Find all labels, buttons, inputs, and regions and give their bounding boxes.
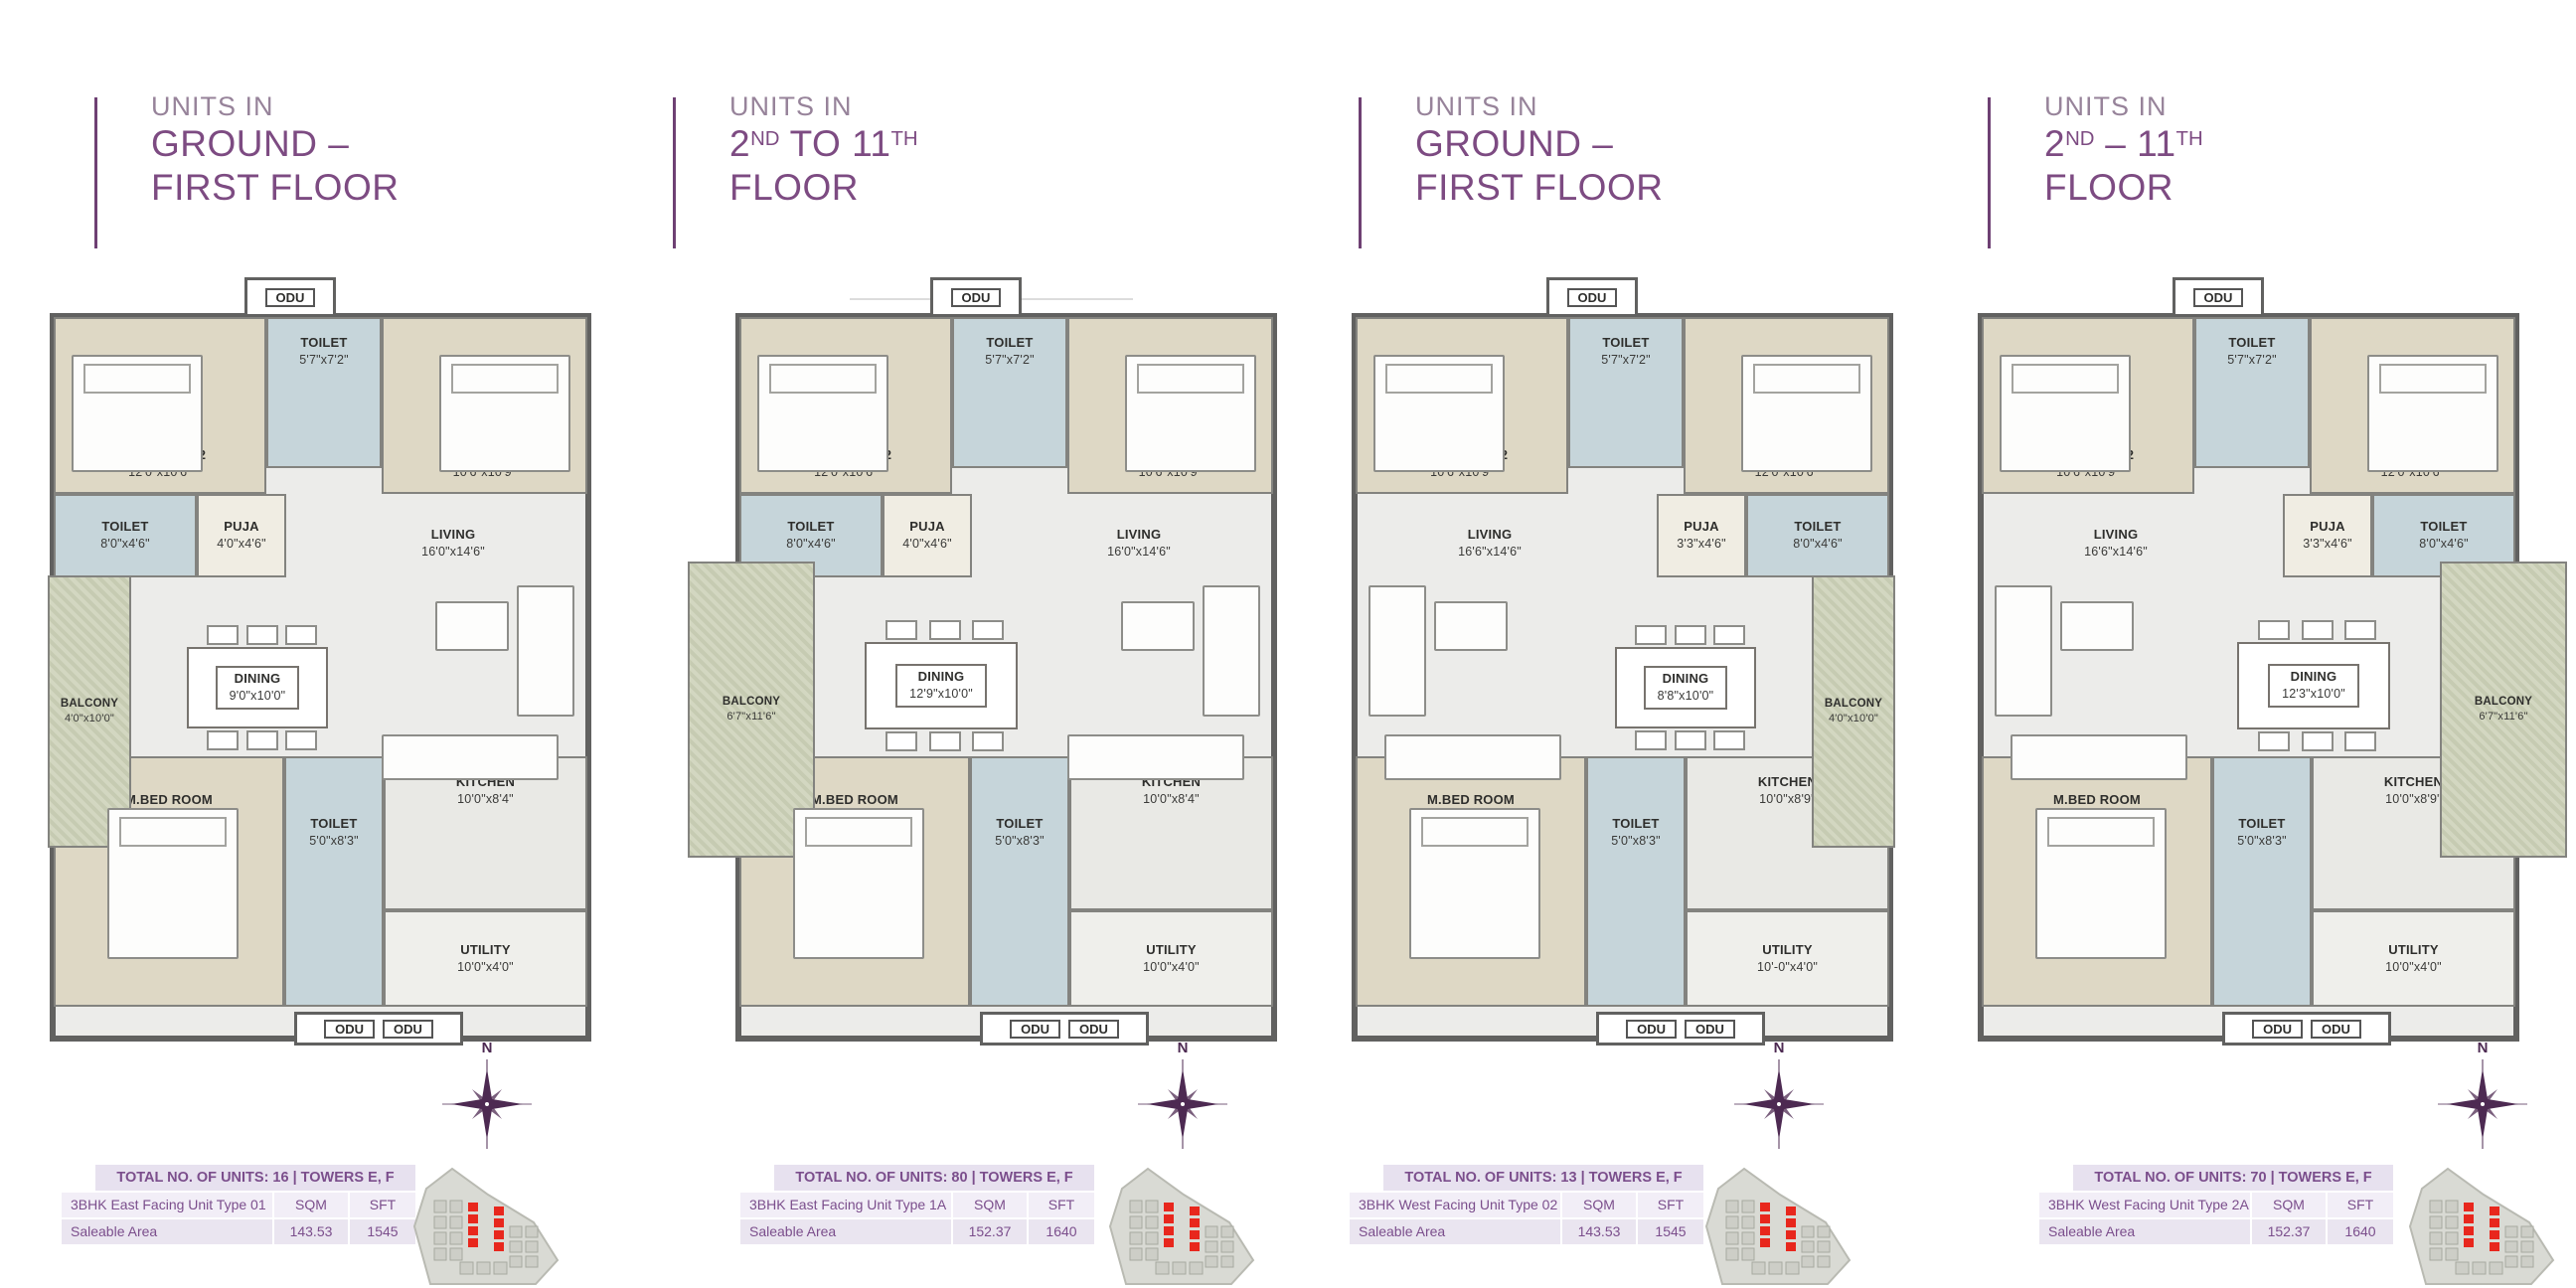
- title-text-part: 2: [729, 123, 750, 164]
- room-label: PUJA4'0"x4'6": [217, 519, 266, 552]
- panel-title-text: UNITS INGROUND –FIRST FLOOR: [151, 91, 399, 248]
- dining-table: DINING8'8"x10'0": [1615, 647, 1755, 729]
- room-dimensions: 16'6"x14'6": [2084, 544, 2148, 560]
- room-label: LIVING16'0"x14'6": [1107, 527, 1171, 560]
- bed-icon: [439, 355, 570, 472]
- odu-label: ODU: [2193, 288, 2244, 307]
- table-cell: 152.37: [953, 1219, 1027, 1244]
- table-cell: 3BHK West Facing Unit Type 02: [1350, 1193, 1560, 1217]
- sofa-icon: [1995, 585, 2052, 717]
- panel-title: UNITS INGROUND –FIRST FLOOR: [94, 91, 399, 248]
- title-line: 2ND – 11TH: [2044, 122, 2203, 166]
- room-label: PUJA4'0"x4'6": [902, 519, 952, 552]
- dining-chair: [1675, 730, 1706, 750]
- title-line: GROUND –: [1415, 122, 1663, 166]
- title-line: FIRST FLOOR: [1415, 166, 1663, 210]
- room-dimensions: 3'3"x4'6": [1677, 536, 1726, 552]
- room-dimensions: 16'0"x14'6": [1107, 544, 1171, 560]
- table-cell: 1640: [1029, 1219, 1094, 1244]
- table-row: 3BHK East Facing Unit Type 01SQMSFT: [62, 1193, 415, 1217]
- panel-title-text: UNITS IN2ND – 11THFLOOR: [2044, 91, 2203, 248]
- bed-icon: [107, 808, 239, 959]
- room-odu-top: ODU: [1546, 277, 1638, 317]
- room-toilet-top: TOILET5'7"x7'2": [266, 317, 382, 468]
- panel-title-text: UNITS IN2ND TO 11THFLOOR: [729, 91, 918, 248]
- sofa-icon: [2011, 734, 2187, 780]
- title-text-part: GROUND –: [151, 123, 349, 164]
- dining-chair: [929, 731, 961, 751]
- table-header: TOTAL NO. OF UNITS: 16 | TOWERS E, F: [95, 1165, 415, 1191]
- room-living: LIVING16'0"x14'6": [349, 516, 558, 571]
- dining-chair: [2258, 620, 2290, 640]
- room-label: UTILITY10'0"x4'0": [1143, 942, 1200, 975]
- room-dimensions: 6'7"x11'6": [723, 710, 780, 724]
- table-row: Saleable Area152.371640: [740, 1219, 1094, 1244]
- room-dimensions: 5'7"x7'2": [985, 352, 1035, 368]
- room-label: BALCONY4'0"x10'0": [1825, 697, 1882, 725]
- room-dimensions: 10'0"x4'0": [1143, 959, 1200, 975]
- room-label: LIVING16'6"x14'6": [2084, 527, 2148, 560]
- table-header: TOTAL NO. OF UNITS: 13 | TOWERS E, F: [1383, 1165, 1703, 1191]
- bed-icon: [2367, 355, 2498, 472]
- dining-chair: [1635, 625, 1667, 645]
- odu-label: ODU: [1068, 1020, 1119, 1039]
- title-text-part: TH: [890, 128, 917, 150]
- title-text-part: GROUND –: [1415, 123, 1613, 164]
- panel-title: UNITS IN2ND – 11THFLOOR: [1988, 91, 2203, 248]
- center-table-icon: [1121, 601, 1195, 651]
- odu-label: ODU: [324, 1020, 375, 1039]
- room-dimensions: 8'0"x4'6": [786, 536, 836, 552]
- room-odu-top: ODU: [930, 277, 1022, 317]
- dining-chair: [1675, 625, 1706, 645]
- room-label: PUJA3'3"x4'6": [2303, 519, 2352, 552]
- room-utility: UTILITY10'0"x4'0": [1069, 910, 1273, 1007]
- room-label: TOILET8'0"x4'6": [2419, 519, 2469, 552]
- north-label: N: [482, 1040, 493, 1056]
- room-label: TOILET5'0"x8'3": [995, 816, 1045, 849]
- room-label: UTILITY10'-0"x4'0": [1757, 942, 1818, 975]
- table-cell: SQM: [1562, 1193, 1636, 1217]
- room-dimensions: 4'0"x4'6": [217, 536, 266, 552]
- north-label: N: [2478, 1040, 2489, 1056]
- dining-chair: [972, 620, 1004, 640]
- dining-chair: [207, 730, 239, 750]
- room-label: TOILET8'0"x4'6": [1793, 519, 1843, 552]
- dining-chair: [885, 620, 917, 640]
- area-table: TOTAL NO. OF UNITS: 16 | TOWERS E, F3BHK…: [62, 1165, 415, 1244]
- compass-rose-icon: [1137, 1058, 1228, 1155]
- room-utility: UTILITY10'0"x4'0": [2312, 910, 2515, 1007]
- title-text-part: TO 11: [779, 123, 890, 164]
- odu-label: ODU: [2252, 1020, 2303, 1039]
- odu-label: ODU: [1685, 1020, 1735, 1039]
- title-text-part: FIRST FLOOR: [1415, 167, 1663, 208]
- dining-chair: [2302, 731, 2334, 751]
- room-dimensions: 3'3"x4'6": [2303, 536, 2352, 552]
- room-label: BALCONY6'7"x11'6": [723, 695, 780, 724]
- room-dimensions: 4'0"x10'0": [1825, 712, 1882, 725]
- room-label: KITCHEN10'0"x8'9": [2384, 774, 2443, 807]
- dining-chair: [285, 730, 317, 750]
- table-row: Saleable Area143.531545: [62, 1219, 415, 1244]
- room-label: TOILET8'0"x4'6": [786, 519, 836, 552]
- dining-chair: [885, 731, 917, 751]
- map-group: N: [398, 1040, 576, 1288]
- title-accent-bar: [673, 97, 676, 248]
- table-cell: 1640: [2328, 1219, 2393, 1244]
- title-text-part: FLOOR: [2044, 167, 2173, 208]
- room-dimensions: 16'0"x14'6": [421, 544, 485, 560]
- title-line: GROUND –: [151, 122, 399, 166]
- room-odu-bottom: ODUODU: [980, 1012, 1149, 1046]
- dining-chair: [2344, 620, 2376, 640]
- site-map: [1698, 1163, 1859, 1288]
- room-dimensions: 5'0"x8'3": [995, 833, 1045, 849]
- compass-rose-icon: [1733, 1058, 1825, 1155]
- dining-table: DINING12'3"x10'0": [2237, 642, 2390, 729]
- sofa-icon: [1067, 734, 1244, 780]
- room-dimensions: 5'7"x7'2": [1601, 352, 1651, 368]
- sofa-icon: [1368, 585, 1426, 717]
- table-row: Saleable Area152.371640: [2039, 1219, 2393, 1244]
- area-table: TOTAL NO. OF UNITS: 80 | TOWERS E, F3BHK…: [740, 1165, 1094, 1244]
- title-text-part: TH: [2176, 128, 2203, 150]
- room-dimensions: 10'0"x8'9": [2384, 791, 2443, 807]
- area-table: TOTAL NO. OF UNITS: 13 | TOWERS E, F3BHK…: [1350, 1165, 1703, 1244]
- bed-icon: [1741, 355, 1872, 472]
- title-line: 2ND TO 11TH: [729, 122, 918, 166]
- panel-title: UNITS INGROUND –FIRST FLOOR: [1359, 91, 1663, 248]
- map-group: N: [1690, 1040, 1868, 1288]
- room-toilet-mid: TOILET8'0"x4'6": [1746, 494, 1889, 577]
- room-toilet-bot: TOILET5'0"x8'3": [2212, 756, 2312, 1007]
- dining-chair: [246, 730, 278, 750]
- room-label: DINING12'3"x10'0": [2268, 664, 2359, 707]
- sofa-icon: [1384, 734, 1561, 780]
- panel-title-text: UNITS INGROUND –FIRST FLOOR: [1415, 91, 1663, 248]
- floor-plan: BED ROOM-0210'6"x10'9"BED ROOM-0312'0"x1…: [1352, 313, 1893, 1042]
- dining-chair: [207, 625, 239, 645]
- odu-label: ODU: [1567, 288, 1618, 307]
- room-living: LIVING16'0"x14'6": [1035, 516, 1243, 571]
- title-eyebrow: UNITS IN: [1415, 91, 1663, 122]
- room-dimensions: 6'7"x11'6": [2475, 710, 2532, 724]
- room-dimensions: 10'0"x8'4": [1142, 791, 1201, 807]
- table-cell: SQM: [2252, 1193, 2326, 1217]
- room-toilet-bot: TOILET5'0"x8'3": [970, 756, 1069, 1007]
- table-cell: SQM: [953, 1193, 1027, 1217]
- title-accent-bar: [1359, 97, 1362, 248]
- table-row: 3BHK West Facing Unit Type 2ASQMSFT: [2039, 1193, 2393, 1217]
- table-cell: SFT: [1029, 1193, 1094, 1217]
- room-balcony: BALCONY6'7"x11'6": [2440, 562, 2567, 858]
- room-balcony: BALCONY4'0"x10'0": [48, 575, 131, 848]
- site-map: [1102, 1163, 1263, 1288]
- dining-chair: [929, 620, 961, 640]
- north-label: N: [1774, 1040, 1785, 1056]
- room-odu-bottom: ODUODU: [1596, 1012, 1765, 1046]
- room-dimensions: 16'6"x14'6": [1458, 544, 1522, 560]
- dining-chair: [972, 731, 1004, 751]
- map-group: N: [1093, 1040, 1272, 1288]
- title-text-part: ND: [2065, 128, 2094, 150]
- room-puja: PUJA4'0"x4'6": [883, 494, 972, 577]
- bed-icon: [1409, 808, 1540, 959]
- odu-label: ODU: [1010, 1020, 1060, 1039]
- room-toilet-mid: TOILET8'0"x4'6": [54, 494, 197, 577]
- floor-plan: BED ROOM-0212'0"x10'6"BED ROOM-0310'6"x1…: [735, 313, 1277, 1042]
- dining-chair: [246, 625, 278, 645]
- room-toilet-bot: TOILET5'0"x8'3": [284, 756, 384, 1007]
- odu-label: ODU: [383, 1020, 433, 1039]
- sofa-icon: [382, 734, 559, 780]
- bed-icon: [793, 808, 924, 959]
- room-dimensions: 12'9"x10'0": [909, 686, 973, 702]
- title-text-part: ND: [750, 128, 779, 150]
- dining-chair: [1713, 625, 1745, 645]
- sofa-icon: [517, 585, 574, 717]
- bed-icon: [1373, 355, 1505, 472]
- north-label: N: [1178, 1040, 1189, 1056]
- title-line: FLOOR: [2044, 166, 2203, 210]
- room-label: DINING8'8"x10'0": [1644, 666, 1728, 709]
- room-label: UTILITY10'0"x4'0": [457, 942, 514, 975]
- room-dimensions: 10'-0"x4'0": [1757, 959, 1818, 975]
- room-dimensions: 8'0"x4'6": [2419, 536, 2469, 552]
- room-label: UTILITY10'0"x4'0": [2385, 942, 2442, 975]
- bed-icon: [2000, 355, 2131, 472]
- room-label: TOILET5'7"x7'2": [299, 335, 349, 368]
- area-table: TOTAL NO. OF UNITS: 70 | TOWERS E, F3BHK…: [2039, 1165, 2393, 1244]
- room-label: BALCONY4'0"x10'0": [61, 697, 118, 725]
- compass-rose-icon: [441, 1058, 533, 1155]
- room-dimensions: 4'0"x10'0": [61, 712, 118, 725]
- dining-chair: [285, 625, 317, 645]
- room-label: TOILET5'7"x7'2": [1601, 335, 1651, 368]
- floor-plan: BED ROOM-0210'6"x10'9"BED ROOM-0312'0"x1…: [1978, 313, 2519, 1042]
- room-dimensions: 5'0"x8'3": [309, 833, 359, 849]
- panel-title: UNITS IN2ND TO 11THFLOOR: [673, 91, 918, 248]
- compass-rose-icon: [2437, 1058, 2528, 1155]
- room-dimensions: 10'0"x8'4": [456, 791, 515, 807]
- room-label: PUJA3'3"x4'6": [1677, 519, 1726, 552]
- room-odu-top: ODU: [2173, 277, 2264, 317]
- room-utility: UTILITY10'0"x4'0": [384, 910, 587, 1007]
- table-row: Saleable Area143.531545: [1350, 1219, 1703, 1244]
- room-dimensions: 10'0"x4'0": [457, 959, 514, 975]
- room-label: DINING12'9"x10'0": [895, 664, 987, 707]
- table-cell: SFT: [2328, 1193, 2393, 1217]
- dining-table: DINING12'9"x10'0": [865, 642, 1018, 729]
- bed-icon: [72, 355, 203, 472]
- table-header: TOTAL NO. OF UNITS: 80 | TOWERS E, F: [774, 1165, 1094, 1191]
- room-balcony: BALCONY4'0"x10'0": [1812, 575, 1895, 848]
- room-odu-bottom: ODUODU: [294, 1012, 463, 1046]
- map-group: N: [2393, 1040, 2572, 1288]
- room-odu-bottom: ODUODU: [2222, 1012, 2391, 1046]
- room-dimensions: 10'0"x4'0": [2385, 959, 2442, 975]
- room-puja: PUJA3'3"x4'6": [2283, 494, 2372, 577]
- table-cell: Saleable Area: [2039, 1219, 2250, 1244]
- odu-label: ODU: [265, 288, 316, 307]
- room-dimensions: 10'0"x8'9": [1758, 791, 1817, 807]
- table-header: TOTAL NO. OF UNITS: 70 | TOWERS E, F: [2073, 1165, 2393, 1191]
- center-table-icon: [2060, 601, 2134, 651]
- table-cell: Saleable Area: [62, 1219, 272, 1244]
- odu-label: ODU: [951, 288, 1002, 307]
- title-eyebrow: UNITS IN: [729, 91, 918, 122]
- room-label: TOILET5'0"x8'3": [1611, 816, 1661, 849]
- room-dimensions: 5'0"x8'3": [2237, 833, 2287, 849]
- bed-icon: [1125, 355, 1256, 472]
- room-label: LIVING16'0"x14'6": [421, 527, 485, 560]
- room-label: DINING9'0"x10'0": [216, 666, 300, 709]
- site-map: [2402, 1163, 2563, 1288]
- dining-chair: [2258, 731, 2290, 751]
- table-cell: Saleable Area: [1350, 1219, 1560, 1244]
- center-table-icon: [1434, 601, 1508, 651]
- table-cell: 3BHK West Facing Unit Type 2A: [2039, 1193, 2250, 1217]
- bed-icon: [2035, 808, 2167, 959]
- table-cell: 143.53: [274, 1219, 348, 1244]
- room-dimensions: 9'0"x10'0": [230, 688, 286, 704]
- room-label: TOILET5'7"x7'2": [985, 335, 1035, 368]
- room-dimensions: 8'0"x4'6": [100, 536, 150, 552]
- brochure-page: UNITS INGROUND –FIRST FLOORBED ROOM-0212…: [0, 0, 2576, 1288]
- title-text-part: 2: [2044, 123, 2065, 164]
- odu-label: ODU: [2311, 1020, 2361, 1039]
- floor-plan: BED ROOM-0212'0"x10'6"BED ROOM-0310'6"x1…: [50, 313, 591, 1042]
- room-dimensions: 12'3"x10'0": [2282, 686, 2345, 702]
- room-odu-top: ODU: [244, 277, 336, 317]
- table-row: 3BHK West Facing Unit Type 02SQMSFT: [1350, 1193, 1703, 1217]
- table-cell: 152.37: [2252, 1219, 2326, 1244]
- title-accent-bar: [94, 97, 97, 248]
- room-toilet-bot: TOILET5'0"x8'3": [1586, 756, 1686, 1007]
- dining-chair: [2302, 620, 2334, 640]
- room-dimensions: 4'0"x4'6": [902, 536, 952, 552]
- room-label: KITCHEN10'0"x8'9": [1758, 774, 1817, 807]
- title-eyebrow: UNITS IN: [151, 91, 399, 122]
- room-dimensions: 5'0"x8'3": [1611, 833, 1661, 849]
- title-eyebrow: UNITS IN: [2044, 91, 2203, 122]
- room-label: TOILET5'0"x8'3": [2237, 816, 2287, 849]
- table-cell: 3BHK East Facing Unit Type 01: [62, 1193, 272, 1217]
- room-puja: PUJA4'0"x4'6": [197, 494, 286, 577]
- room-dimensions: 5'7"x7'2": [299, 352, 349, 368]
- room-label: BALCONY6'7"x11'6": [2475, 695, 2532, 724]
- room-label: TOILET8'0"x4'6": [100, 519, 150, 552]
- room-living: LIVING16'6"x14'6": [1385, 516, 1594, 571]
- table-row: 3BHK East Facing Unit Type 1ASQMSFT: [740, 1193, 1094, 1217]
- bed-icon: [757, 355, 888, 472]
- room-toilet-top: TOILET5'7"x7'2": [2194, 317, 2310, 468]
- title-text-part: FIRST FLOOR: [151, 167, 399, 208]
- table-cell: 143.53: [1562, 1219, 1636, 1244]
- room-utility: UTILITY10'-0"x4'0": [1686, 910, 1889, 1007]
- title-accent-bar: [1988, 97, 1991, 248]
- room-label: TOILET5'0"x8'3": [309, 816, 359, 849]
- room-toilet-top: TOILET5'7"x7'2": [952, 317, 1067, 468]
- table-cell: Saleable Area: [740, 1219, 951, 1244]
- table-cell: SQM: [274, 1193, 348, 1217]
- sofa-icon: [1203, 585, 1260, 717]
- odu-label: ODU: [1626, 1020, 1677, 1039]
- site-map: [406, 1163, 567, 1288]
- table-cell: 3BHK East Facing Unit Type 1A: [740, 1193, 951, 1217]
- room-puja: PUJA3'3"x4'6": [1657, 494, 1746, 577]
- room-label: TOILET5'7"x7'2": [2227, 335, 2277, 368]
- dining-chair: [2344, 731, 2376, 751]
- room-dimensions: 8'0"x4'6": [1793, 536, 1843, 552]
- title-text-part: – 11: [2094, 123, 2175, 164]
- title-text-part: FLOOR: [729, 167, 859, 208]
- center-table-icon: [435, 601, 509, 651]
- title-line: FIRST FLOOR: [151, 166, 399, 210]
- dining-table: DINING9'0"x10'0": [187, 647, 327, 729]
- room-label: LIVING16'6"x14'6": [1458, 527, 1522, 560]
- dining-chair: [1713, 730, 1745, 750]
- title-line: FLOOR: [729, 166, 918, 210]
- room-dimensions: 5'7"x7'2": [2227, 352, 2277, 368]
- room-living: LIVING16'6"x14'6": [2012, 516, 2220, 571]
- room-dimensions: 8'8"x10'0": [1658, 688, 1714, 704]
- room-toilet-top: TOILET5'7"x7'2": [1568, 317, 1684, 468]
- dining-chair: [1635, 730, 1667, 750]
